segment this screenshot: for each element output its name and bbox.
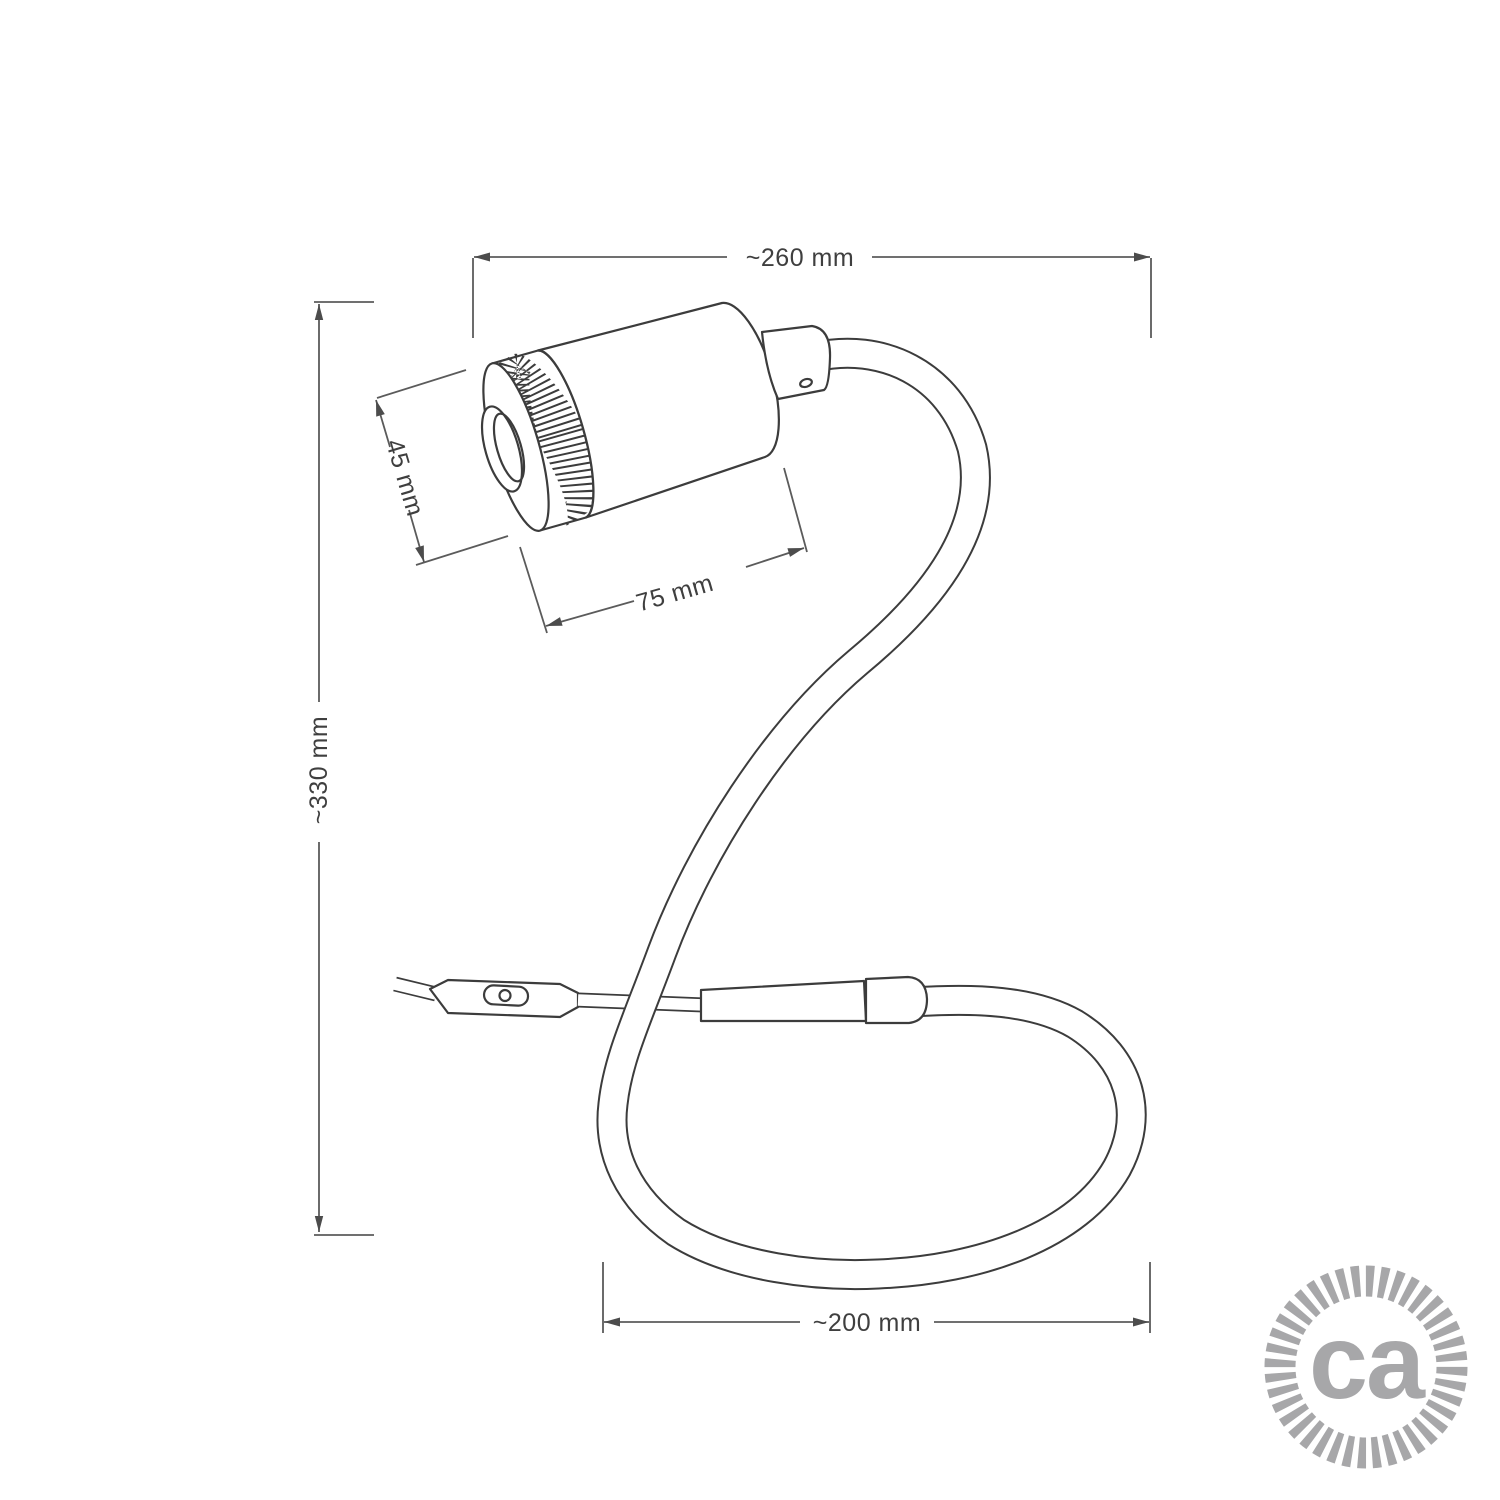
base-width-label: ~200 mm [813, 1309, 921, 1337]
total-height-label: ~330 mm [305, 716, 333, 824]
arrow-down-icon [415, 545, 424, 562]
arrow-up-icon [315, 304, 323, 320]
spot-length-label: 75 mm [633, 569, 717, 618]
arrow-down-icon [315, 1216, 323, 1232]
total-width-label: ~260 mm [746, 244, 854, 272]
arrow-left-icon [474, 253, 490, 262]
arrow-right-icon [1134, 253, 1150, 262]
ferrule [866, 977, 927, 1023]
arrow-up-icon [376, 400, 385, 417]
arrow-left-icon [604, 1318, 620, 1327]
arrow-right-icon [787, 548, 804, 557]
strain-relief-sleeve [701, 981, 866, 1021]
arrow-right-icon [1133, 1318, 1149, 1327]
brand-logo: ca [1280, 1281, 1452, 1453]
brand-logo-text: ca [1309, 1303, 1426, 1421]
spot-diameter-label: 45 mm [380, 436, 429, 520]
technical-drawing-page: ~260 mm ~330 mm ~200 mm 45 mm [0, 0, 1500, 1500]
inline-switch [430, 980, 578, 1017]
dimension-total-width: ~260 mm [473, 244, 1151, 338]
spotlight-head [470, 303, 830, 537]
arrow-left-icon [546, 617, 563, 626]
lamp-dimension-drawing: ~260 mm ~330 mm ~200 mm 45 mm [0, 0, 1500, 1500]
gooseneck-tube [612, 353, 1131, 1274]
dimension-total-height: ~330 mm [305, 302, 374, 1235]
